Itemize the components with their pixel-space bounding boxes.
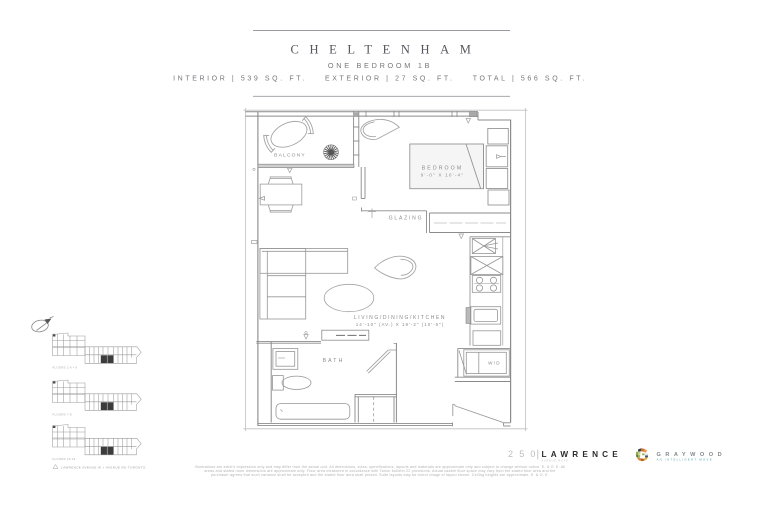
svg-text:ONE BEDROOM 1B: ONE BEDROOM 1B: [328, 61, 432, 70]
svg-text:INTERIOR | 539 SQ. FT. EXTE: INTERIOR | 539 SQ. FT. EXTERIOR | 27 SQ.…: [173, 76, 587, 83]
svg-text:BALCONY: BALCONY: [274, 153, 306, 159]
svg-text:AN INTELLIGENT MOVE: AN INTELLIGENT MOVE: [657, 458, 713, 462]
svg-text:LAWRENCE AVENUE W + AVENUE R: LAWRENCE AVENUE W + AVENUE RD TORONTO: [61, 466, 146, 470]
svg-text:GLAZING: GLAZING: [389, 216, 424, 222]
svg-text:LAWRENCE: LAWRENCE: [542, 450, 622, 459]
svg-text:W/D: W/D: [488, 361, 501, 366]
svg-text:BEDROOM: BEDROOM: [422, 166, 464, 172]
svg-text:BATH: BATH: [323, 358, 345, 364]
svg-text:LIVING/DINING/KITCHEN: LIVING/DINING/KITCHEN: [354, 315, 446, 321]
svg-text:250: 250: [508, 449, 542, 459]
svg-text:AVENUE ROAD: AVENUE ROAD: [542, 459, 570, 463]
svg-text:FLOORS 7-8: FLOORS 7-8: [53, 413, 72, 417]
svg-text:FLOORS 10-19: FLOORS 10-19: [53, 457, 76, 461]
svg-text:FLOORS 2-6 • 9: FLOORS 2-6 • 9: [53, 366, 78, 370]
svg-text:purchaser agrees that such var: purchaser agrees that such variance shal…: [211, 473, 549, 477]
svg-text:14'-10" (AV.) X 19'-2" (10'-5": 14'-10" (AV.) X 19'-2" (10'-5"): [356, 322, 444, 327]
svg-text:CHELTENHAM: CHELTENHAM: [291, 43, 482, 57]
svg-text:9'-0" X 10'-4": 9'-0" X 10'-4": [421, 173, 465, 178]
